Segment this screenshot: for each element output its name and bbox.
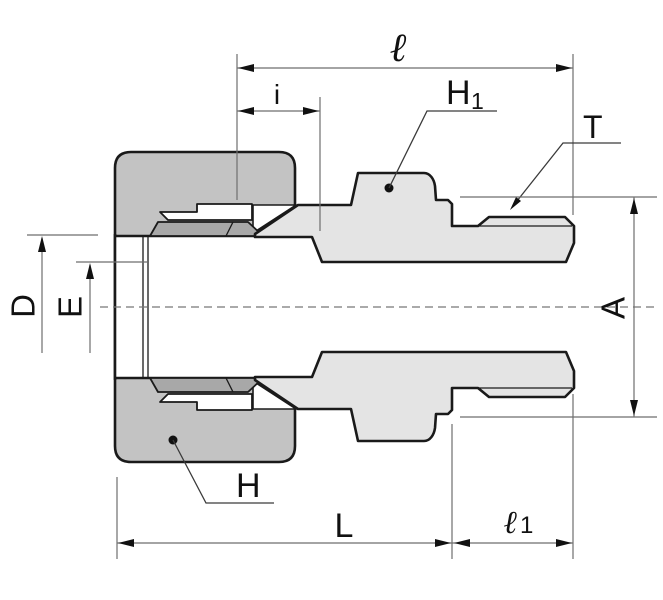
dim-label-l: L [335,507,354,545]
dim-label-i: i [274,79,280,110]
dim-label-e: E [52,296,89,318]
callout-label-t: T [583,109,603,145]
dim-label-a: A [595,297,632,319]
drawing-canvas: ℓ i H 1 T A D E [0,0,663,600]
callout-label-h1-sub: 1 [471,88,484,114]
fitting-technical-drawing: ℓ i H 1 T A D E [0,0,663,600]
dim-label-l1-sub: 1 [520,512,533,539]
callout-label-h1: H [446,74,471,112]
dim-label-l1: ℓ [503,503,517,541]
dim-label-ell: ℓ [390,25,407,71]
ferrule-bottom [150,378,261,392]
dim-label-d: D [5,294,42,318]
ferrule-top [150,222,261,236]
callout-label-h: H [236,467,261,505]
